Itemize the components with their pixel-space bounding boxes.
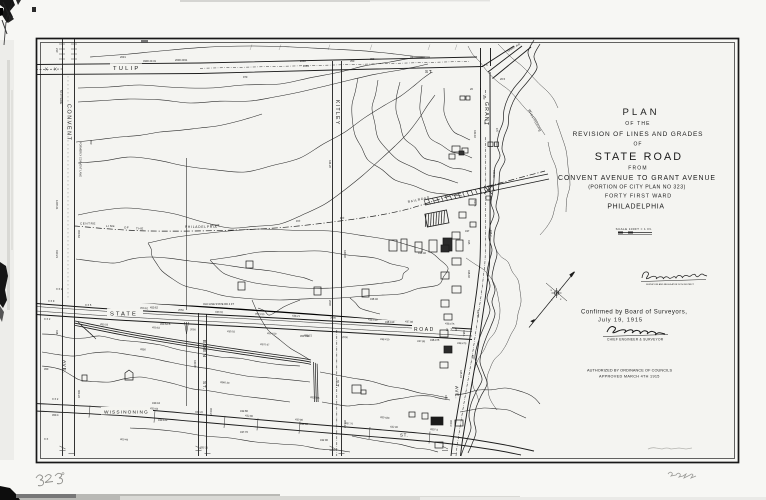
- svg-text:X X 2: X X 2: [56, 287, 63, 291]
- svg-text:438.21: 438.21: [304, 333, 313, 337]
- svg-text:400 44: 400 44: [120, 437, 129, 442]
- svg-text:ST.: ST.: [400, 433, 408, 438]
- svg-text:REVISION OF LINES AND GRADES: REVISION OF LINES AND GRADES: [573, 131, 704, 138]
- svg-text:437: 437: [471, 355, 475, 360]
- svg-text:X X 5: X X 5: [85, 303, 92, 307]
- svg-text:430 80: 430 80: [300, 422, 308, 426]
- svg-text:450: 450: [44, 367, 49, 371]
- svg-text:CENTRE: CENTRE: [80, 222, 96, 226]
- svg-text:463.22: 463.22: [77, 390, 81, 398]
- svg-text:2050: 2050: [178, 308, 185, 312]
- svg-text:STATE ROAD: STATE ROAD: [595, 151, 683, 163]
- svg-text:50 FT WIDE: 50 FT WIDE: [59, 90, 63, 104]
- svg-text:433 20: 433 20: [200, 445, 209, 450]
- svg-text:432.80: 432.80: [245, 413, 254, 418]
- svg-text:438 410: 438 410: [368, 317, 378, 322]
- svg-text:437: 437: [465, 229, 470, 233]
- svg-text:450.62: 450.62: [77, 230, 81, 238]
- svg-text:437.5: 437.5: [473, 200, 477, 207]
- svg-text:CONVENT: CONVENT: [66, 104, 72, 142]
- svg-text:437.88: 437.88: [405, 319, 414, 323]
- svg-text:4307.5: 4307.5: [430, 427, 439, 432]
- svg-text:FROM: FROM: [628, 166, 648, 172]
- svg-text:450.62: 450.62: [152, 325, 161, 329]
- svg-text:OF: OF: [634, 142, 643, 148]
- svg-text:X X 2: X X 2: [44, 317, 51, 321]
- svg-text:ST.: ST.: [202, 381, 207, 390]
- svg-text:440.07: 440.07: [193, 360, 197, 368]
- svg-text:2031: 2031: [120, 55, 126, 59]
- svg-text:443: 443: [483, 120, 487, 125]
- svg-text:2000: 2000: [300, 59, 306, 63]
- svg-text:438.21: 438.21: [292, 314, 301, 318]
- svg-text:AVE.: AVE.: [61, 360, 67, 374]
- svg-text:430.02: 430.02: [215, 310, 224, 314]
- svg-text:4370 47: 4370 47: [260, 342, 270, 347]
- svg-text:ST.: ST.: [335, 380, 340, 389]
- svg-text:438.475: 438.475: [445, 321, 455, 326]
- svg-text:CHIEF ENGINEER & SURVEYOR: CHIEF ENGINEER & SURVEYOR: [607, 338, 664, 342]
- svg-text:438.475: 438.475: [457, 341, 467, 346]
- svg-text:KITLEY: KITLEY: [334, 100, 340, 126]
- svg-text:July 19, 1915: July 19, 1915: [598, 318, 643, 324]
- svg-text:430 80: 430 80: [295, 417, 304, 422]
- svg-text:2000: 2000: [328, 300, 332, 306]
- svg-text:430.21: 430.21: [55, 250, 59, 258]
- svg-text:(PORTION OF CITY PLAN NO 323): (PORTION OF CITY PLAN NO 323): [588, 185, 686, 191]
- svg-text:2004: 2004: [303, 64, 309, 68]
- svg-text:430.02: 430.02: [227, 329, 236, 333]
- svg-text:450.62: 450.62: [140, 306, 149, 310]
- svg-text:4350: 4350: [140, 347, 147, 352]
- svg-text:ROAD: ROAD: [414, 327, 435, 333]
- svg-text:APPROVED MARCH 4TH 1915: APPROVED MARCH 4TH 1915: [599, 375, 660, 379]
- svg-text:200: 200: [482, 95, 486, 100]
- svg-text:432 90: 432 90: [320, 438, 328, 442]
- svg-text:2050: 2050: [190, 327, 197, 331]
- svg-text:433.123: 433.123: [158, 418, 168, 422]
- svg-text:441: 441: [444, 395, 448, 400]
- svg-text:LINE: LINE: [106, 224, 115, 228]
- svg-text:450.62 B: 450.62 B: [160, 322, 171, 326]
- svg-text:OF: OF: [124, 226, 129, 230]
- svg-text:430.44: 430.44: [150, 406, 159, 411]
- svg-text:OLD LINE STATE RD 4 FT: OLD LINE STATE RD 4 FT: [203, 302, 234, 306]
- svg-text:438 410: 438 410: [380, 337, 390, 342]
- svg-text:20.5: 20.5: [500, 77, 506, 81]
- svg-text:Confirmed by Board of Surveyor: Confirmed by Board of Surveyors,: [581, 310, 687, 316]
- svg-text:SCALE 100FT = 1 IN.: SCALE 100FT = 1 IN.: [616, 227, 653, 231]
- svg-text:2000 2031: 2000 2031: [175, 58, 188, 62]
- svg-text:432.80: 432.80: [240, 409, 248, 413]
- svg-text:FORTY FIRST WARD: FORTY FIRST WARD: [605, 194, 672, 200]
- svg-text:432 90: 432 90: [390, 424, 399, 429]
- svg-text:STATE: STATE: [110, 312, 138, 318]
- svg-text:437.70: 437.70: [240, 430, 248, 434]
- svg-text:210: 210: [55, 48, 59, 53]
- svg-text:437.25: 437.25: [476, 310, 480, 318]
- svg-text:435: 435: [467, 240, 471, 245]
- svg-text:437.88: 437.88: [417, 339, 426, 343]
- svg-text:PHILADELPHIA: PHILADELPHIA: [607, 204, 664, 211]
- svg-text:AVE.: AVE.: [454, 386, 460, 400]
- svg-text:438: 438: [55, 330, 59, 335]
- svg-text:443.16: 443.16: [473, 130, 477, 138]
- svg-text:4900 20.31: 4900 20.31: [143, 59, 157, 63]
- svg-text:OF THE: OF THE: [210, 223, 220, 227]
- svg-text:450 410: 450 410: [267, 331, 277, 336]
- svg-text:450 410: 450 410: [255, 312, 265, 317]
- svg-text:TULIP: TULIP: [113, 66, 140, 72]
- svg-text:433 20: 433 20: [195, 410, 204, 415]
- svg-text:OF THE: OF THE: [625, 121, 650, 127]
- svg-text:THE: THE: [136, 227, 144, 231]
- svg-text:2 5: 2 5: [484, 63, 488, 67]
- svg-text:AUTHORIZED BY ORDINANCE OF: AUTHORIZED BY ORDINANCE OF COUNCILS: [587, 369, 672, 373]
- svg-text:ST.: ST.: [425, 69, 434, 74]
- svg-text:350: 350: [370, 57, 375, 61]
- svg-text:450: 450: [89, 140, 93, 145]
- svg-text:EDEN: EDEN: [201, 340, 207, 358]
- svg-text:PLAN: PLAN: [622, 107, 659, 118]
- svg-text:440.90: 440.90: [343, 250, 347, 258]
- svg-text:450.3: 450.3: [449, 420, 453, 427]
- svg-text:1200.21: 1200.21: [55, 200, 59, 210]
- svg-text:2000: 2000: [330, 315, 337, 319]
- svg-text:436.2: 436.2: [489, 230, 493, 237]
- svg-text:436 40: 436 40: [418, 251, 426, 255]
- svg-text:WISSINONING: WISSINONING: [104, 410, 149, 416]
- svg-text:450.4: 450.4: [52, 413, 59, 417]
- svg-text:444.20: 444.20: [328, 160, 332, 168]
- svg-text:FORMERLY CONVENT LANE: FORMERLY CONVENT LANE: [79, 142, 83, 177]
- svg-text:450.03: 450.03: [100, 322, 109, 327]
- svg-text:438.40: 438.40: [467, 270, 471, 278]
- svg-text:430.44: 430.44: [152, 401, 160, 405]
- svg-text:438 40: 438 40: [370, 297, 378, 301]
- svg-text:970: 970: [243, 75, 248, 79]
- svg-text:CONVENT AVENUE TO GRANT AVENUE: CONVENT AVENUE TO GRANT AVENUE: [558, 175, 716, 182]
- svg-text:438 410: 438 410: [385, 320, 395, 324]
- svg-text:445.04: 445.04: [459, 370, 463, 378]
- svg-text:350: 350: [350, 59, 355, 63]
- svg-text:437.70: 437.70: [345, 421, 354, 426]
- svg-text:SURVEYOR AND REGULATOR 14TH D: SURVEYOR AND REGULATOR 14TH DISTRICT: [646, 283, 695, 286]
- svg-text:2000: 2000: [342, 335, 349, 339]
- svg-text:X X: X X: [44, 437, 48, 441]
- svg-text:X X 2: X X 2: [52, 397, 59, 401]
- svg-text:X X 9: X X 9: [48, 299, 55, 303]
- svg-text:450.62: 450.62: [150, 306, 158, 310]
- svg-text:438.475: 438.475: [430, 338, 440, 342]
